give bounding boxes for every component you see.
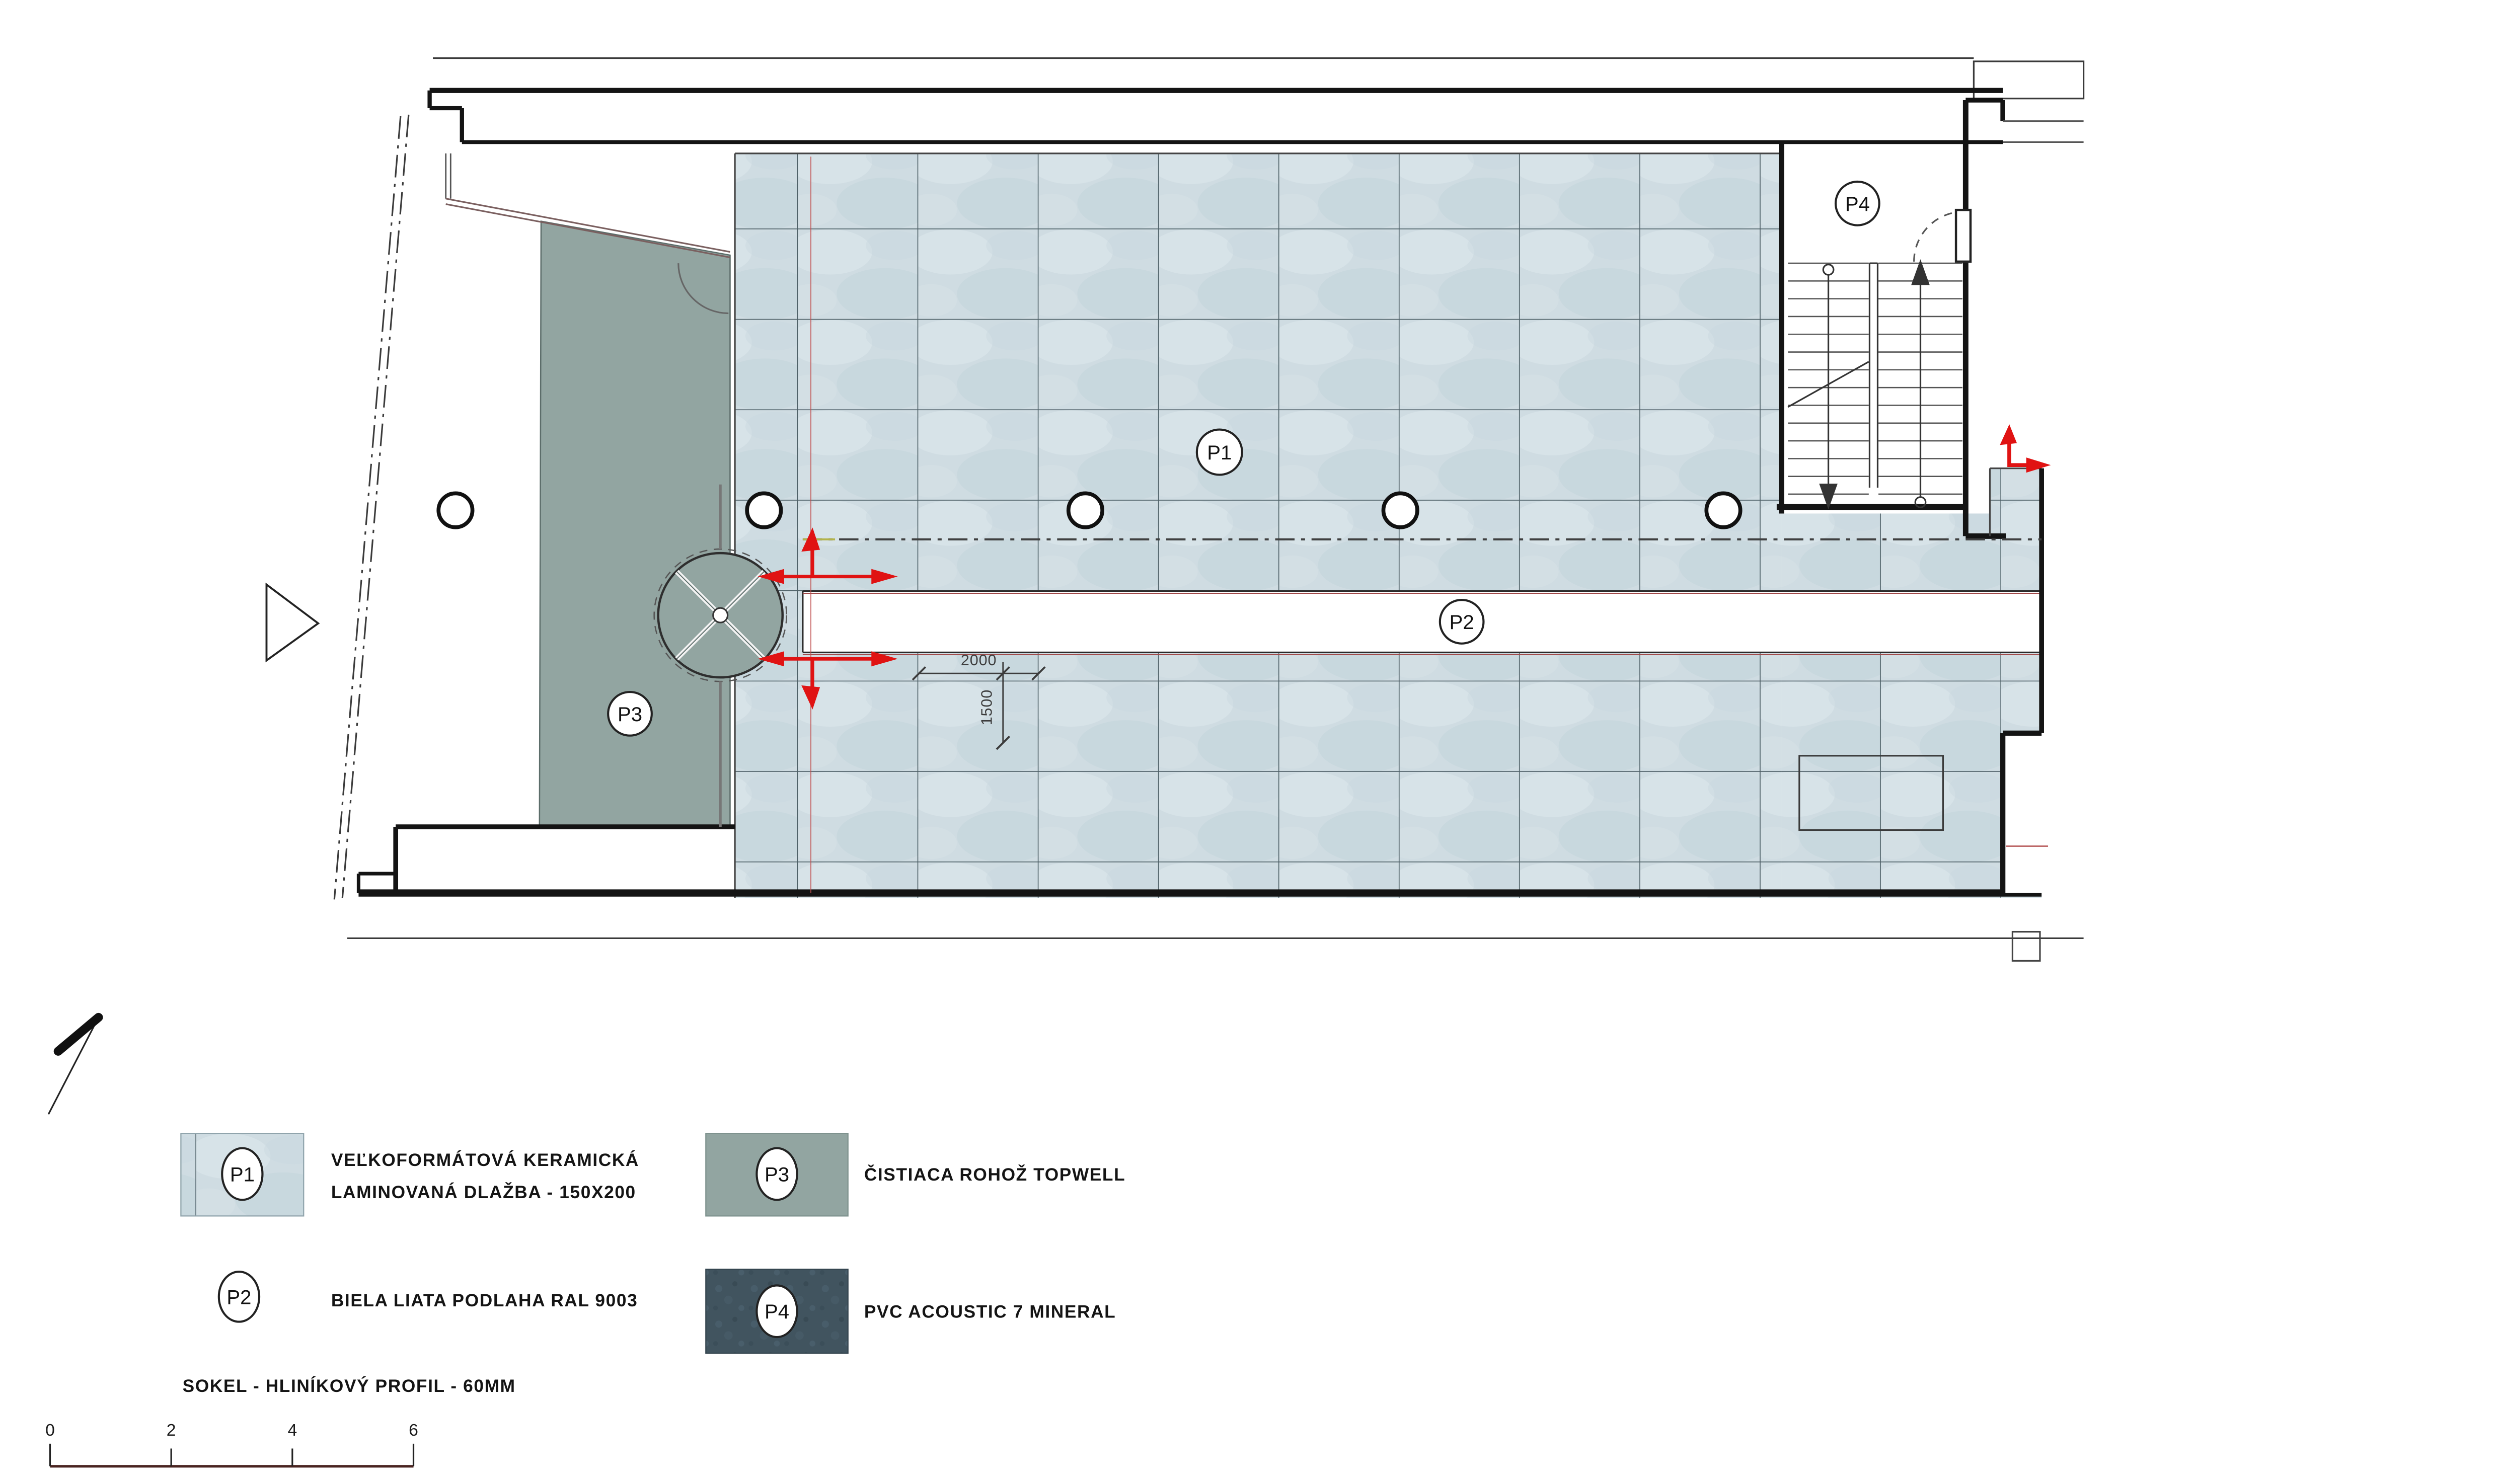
- tile-floor-below-stairs: [1782, 513, 1990, 898]
- legend-desc-p4: PVC ACOUSTIC 7 MINERAL: [864, 1302, 1116, 1322]
- scale-bar: 0 2 4 6: [45, 1421, 418, 1466]
- plan-label-p4: P4: [1845, 193, 1870, 215]
- scale-tick-0: 0: [45, 1421, 55, 1440]
- column-circle-5: [1706, 493, 1740, 527]
- legend-item-p3: P3 ČISTIACA ROHOŽ TOPWELL: [706, 1134, 1125, 1216]
- floor-plan-svg: 2000 1500 P1 P2 P3 P4 P1 VEĽKOFORMÁTOVÁ …: [0, 0, 2497, 1484]
- top-right-wall-lines: [2003, 121, 2083, 142]
- legend: P1 VEĽKOFORMÁTOVÁ KERAMICKÁ LAMINOVANÁ D…: [181, 1134, 1125, 1396]
- legend-desc-p1-line1: VEĽKOFORMÁTOVÁ KERAMICKÁ: [331, 1150, 639, 1170]
- facade-mullion: [446, 153, 451, 199]
- p4-door-leaf: [1956, 210, 1971, 262]
- column-circle-4: [1384, 493, 1417, 527]
- north-slash-mark: [48, 1018, 98, 1115]
- legend-item-p2: P2 BIELA LIATA PODLAHA RAL 9003: [219, 1272, 638, 1321]
- legend-item-p1: P1 VEĽKOFORMÁTOVÁ KERAMICKÁ LAMINOVANÁ D…: [181, 1134, 639, 1216]
- top-right-wall-step: [1965, 100, 2003, 121]
- legend-code-p1: P1: [230, 1163, 255, 1186]
- legend-code-p4: P4: [765, 1301, 789, 1323]
- boundary-dashed-line-2: [334, 116, 401, 899]
- legend-note-sokel: SOKEL - HLINÍKOVÝ PROFIL - 60MM: [183, 1376, 516, 1396]
- drawing-sheet: 2000 1500 P1 P2 P3 P4 P1 VEĽKOFORMÁTOVÁ …: [0, 0, 2497, 1484]
- revolving-door-hub: [713, 608, 728, 622]
- below-wall-small-box: [2012, 932, 2040, 961]
- top-wall-step: [430, 91, 462, 142]
- scale-tick-4: 4: [287, 1421, 297, 1440]
- legend-code-p2: P2: [226, 1286, 251, 1308]
- legend-item-p4: P4 PVC ACOUSTIC 7 MINERAL: [706, 1269, 1116, 1353]
- tile-floor-p1-main: [735, 153, 1781, 898]
- scale-tick-6: 6: [409, 1421, 418, 1440]
- scale-tick-2: 2: [167, 1421, 176, 1440]
- scale-bar-ticks: [50, 1444, 413, 1466]
- column-circle-3: [1069, 493, 1102, 527]
- p2-white-floor-strip: [803, 591, 2041, 652]
- level-marker-corner: [2001, 426, 2048, 472]
- legend-desc-p1-line2: LAMINOVANÁ DLAŽBA - 150X200: [331, 1182, 636, 1202]
- legend-desc-p3: ČISTIACA ROHOŽ TOPWELL: [864, 1164, 1125, 1185]
- stairwell: [1788, 262, 1962, 507]
- stair-divider-wall: [1869, 263, 1877, 488]
- plan-label-p2: P2: [1450, 611, 1474, 634]
- column-circle-2: [747, 493, 781, 527]
- dim-2000-label: 2000: [961, 652, 997, 669]
- plan-label-p1: P1: [1207, 442, 1232, 464]
- bottom-right-notch-fill: [2003, 733, 2083, 893]
- legend-code-p3: P3: [765, 1163, 789, 1186]
- column-circle-1: [438, 493, 472, 527]
- legend-desc-p2: BIELA LIATA PODLAHA RAL 9003: [331, 1291, 638, 1310]
- dim-1500-label: 1500: [978, 689, 995, 726]
- stair-treads: [1788, 263, 1962, 494]
- plan-label-p3: P3: [618, 704, 642, 726]
- entrance-direction-triangle: [266, 585, 318, 661]
- boundary-dashed-line-1: [342, 115, 409, 898]
